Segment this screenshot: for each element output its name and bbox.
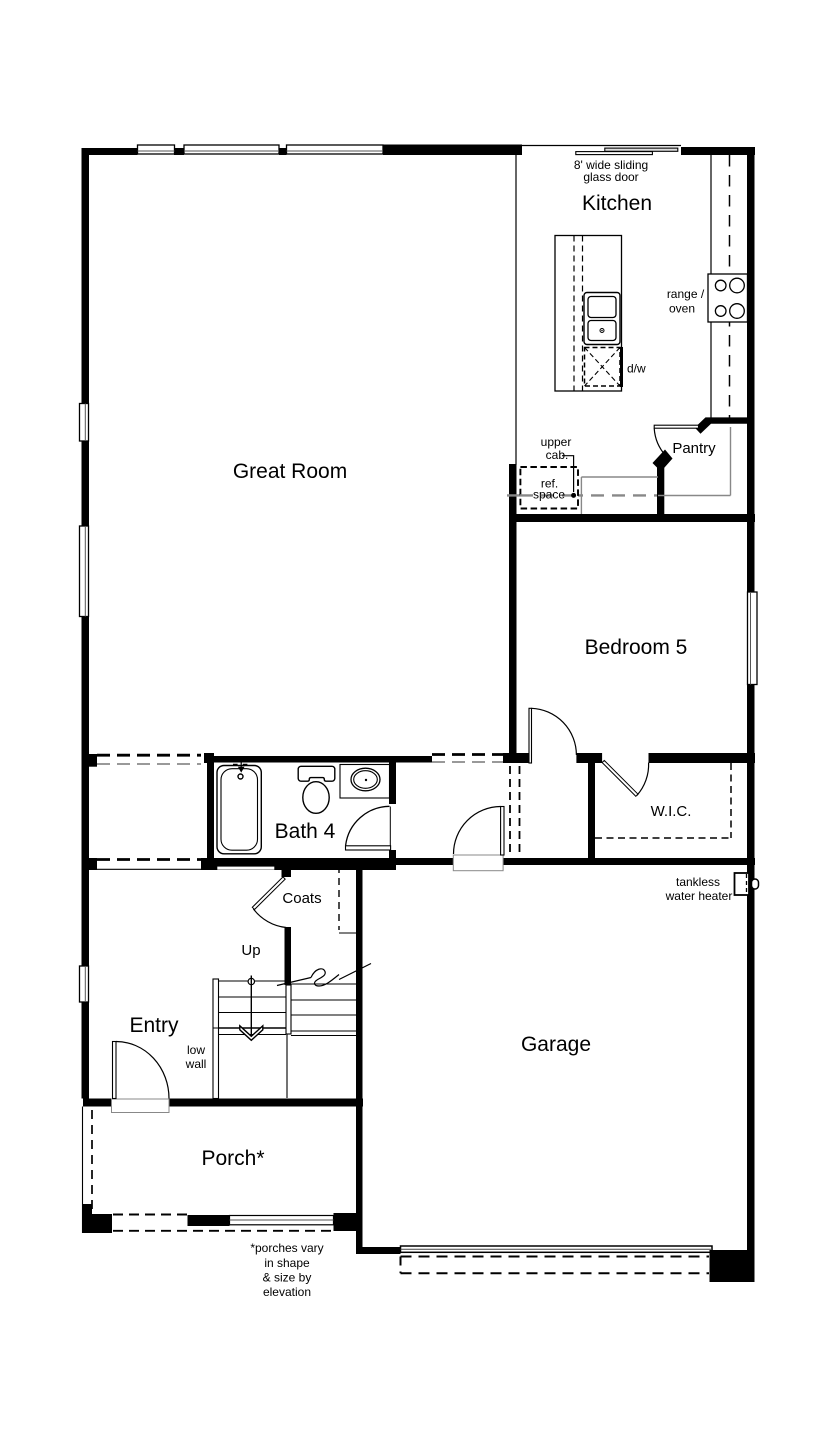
svg-text:tankless: tankless (676, 875, 720, 889)
svg-text:wall: wall (185, 1057, 207, 1071)
svg-text:Bath 4: Bath 4 (275, 820, 336, 843)
svg-text:*porches vary: *porches vary (250, 1241, 323, 1255)
svg-text:elevation: elevation (263, 1285, 311, 1299)
svg-text:Garage: Garage (521, 1033, 591, 1056)
svg-text:Porch*: Porch* (201, 1147, 264, 1170)
svg-text:glass door: glass door (583, 170, 638, 184)
svg-text:range /: range / (667, 287, 705, 301)
svg-text:d/w: d/w (627, 362, 646, 376)
svg-text:cab.: cab. (546, 448, 569, 462)
svg-text:Pantry: Pantry (672, 440, 716, 457)
svg-text:Kitchen: Kitchen (582, 192, 652, 215)
svg-text:Up: Up (241, 942, 260, 959)
svg-text:Great Room: Great Room (233, 460, 347, 483)
svg-text:oven: oven (669, 302, 695, 316)
svg-text:& size by: & size by (263, 1271, 312, 1285)
svg-text:Coats: Coats (282, 890, 321, 907)
svg-text:space: space (533, 488, 565, 502)
svg-text:water heater: water heater (665, 889, 733, 903)
svg-text:Bedroom 5: Bedroom 5 (585, 636, 688, 659)
svg-text:W.I.C.: W.I.C. (651, 803, 692, 820)
svg-text:upper: upper (541, 435, 572, 449)
svg-text:low: low (187, 1043, 205, 1057)
svg-text:in shape: in shape (264, 1256, 310, 1270)
svg-text:Entry: Entry (129, 1014, 179, 1037)
